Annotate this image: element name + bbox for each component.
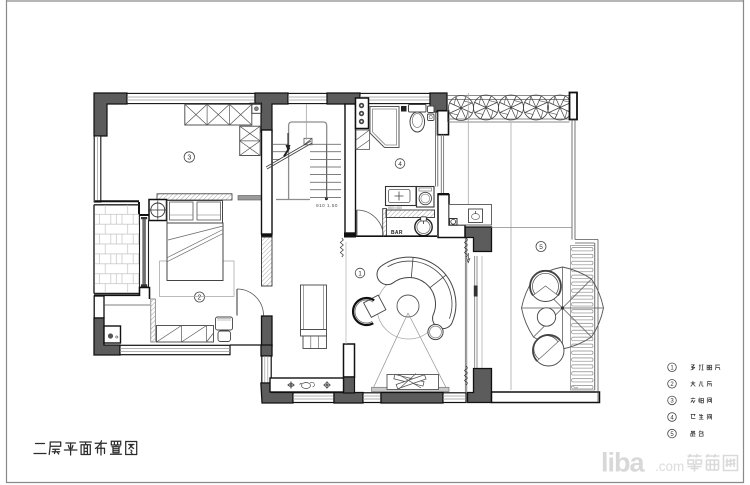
svg-text:860×460: 860×460 <box>388 206 402 210</box>
svg-text:3: 3 <box>187 155 191 162</box>
svg-text:5: 5 <box>539 244 543 251</box>
svg-text:2: 2 <box>198 295 202 302</box>
svg-text:910 1.50: 910 1.50 <box>316 203 338 209</box>
svg-text:4: 4 <box>398 161 402 168</box>
svg-text:BAR: BAR <box>391 230 403 236</box>
svg-text:1: 1 <box>358 271 362 278</box>
svg-text:liba: liba <box>601 448 645 478</box>
svg-text:.com: .com <box>655 459 684 474</box>
